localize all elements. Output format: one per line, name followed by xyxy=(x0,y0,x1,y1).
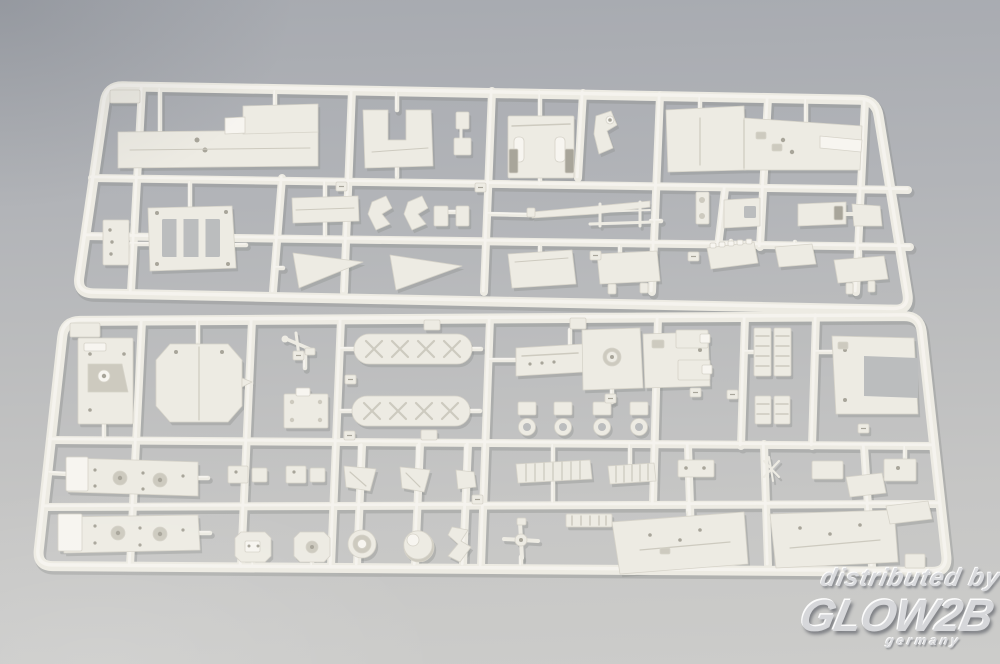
watermark-brand-glow2b: GLOW2B xyxy=(796,593,997,638)
sprue-bottom-group xyxy=(38,315,948,577)
product-photo: distributed by GLOW2B germany xyxy=(0,0,1000,664)
sprue-top-group xyxy=(78,85,912,312)
watermark: distributed by GLOW2B germany xyxy=(794,566,1000,647)
watermark-distributed-by: distributed by xyxy=(806,566,1000,591)
